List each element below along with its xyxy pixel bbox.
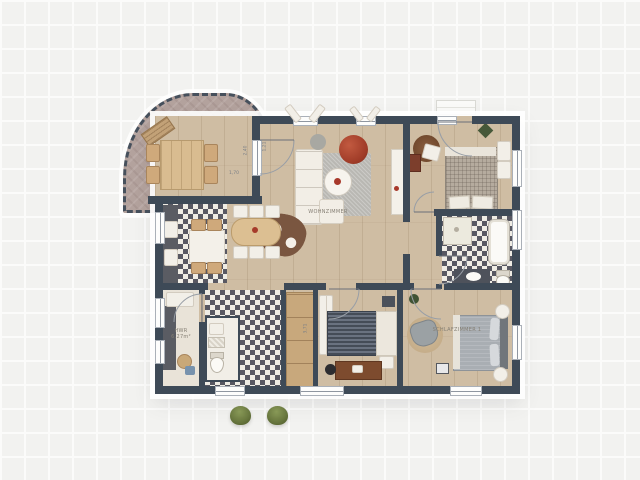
vanity-sink [466,272,481,281]
wall [199,290,205,294]
shower-drain [454,227,459,232]
front-door-slab [437,116,457,125]
wall [436,216,442,256]
closet-wardrobe [286,292,315,388]
wall [512,185,520,210]
floor-plan-canvas: WOHNZIMMER SCHLAFZIMMER 1 HWR 6,27m² 1,7… [0,0,640,480]
bed1-headboard [500,315,508,369]
bedroom1-label: SCHLAFZIMMER 1 [427,327,487,333]
nightstand-round [493,367,508,382]
kitchen-chair [191,219,206,231]
dimension-label: 1,70 [224,171,244,176]
ottoman [310,134,326,150]
kitchen-stove [164,249,178,266]
wall [397,290,403,386]
bed2-striped [327,311,378,356]
utility-area-label: 6,27m² [163,334,199,340]
wall [444,283,512,290]
wall [155,242,163,298]
terrace-table [160,140,204,190]
bed1-pillow [489,344,499,366]
plant [409,294,419,304]
bed3-pillow [449,195,471,209]
bathtub [488,219,510,265]
washing-machine [166,292,194,307]
wall [356,283,403,290]
bed2-pillows [376,311,397,356]
dining-chair [249,246,264,259]
terrace-door-opening [252,140,262,176]
living-room-label: WOHNZIMMER [298,209,358,215]
sideboard-decor [394,186,399,191]
wall [434,209,512,216]
wc-sink [209,323,224,335]
entrance-step [436,100,476,115]
wall [163,283,208,290]
window [155,298,165,328]
wall [313,290,318,386]
desk-paper [352,365,363,373]
wall [284,283,326,290]
window [512,210,522,250]
wall [512,248,520,325]
kitchen-island [189,230,225,263]
bush [230,406,251,425]
laptop [436,363,449,374]
dining-chair [249,205,264,218]
dining-chair [265,205,280,218]
kitchen-sink [164,221,178,238]
terrace-chair [204,166,218,184]
kitchen-counter [163,205,178,283]
bed1-fold [453,315,460,369]
wall [342,386,450,394]
table-decor-red [334,178,341,185]
shelf [497,141,511,161]
dining-chair [265,246,280,259]
nightstand-round [495,304,510,319]
wall [155,386,215,394]
window [155,212,165,244]
wall [281,290,286,386]
dimension-label: 3,71 [304,319,309,339]
wall [148,196,262,204]
wall [243,386,300,394]
wall [252,116,260,140]
wall [155,326,163,340]
wall [199,322,205,386]
kitchen-chair [207,219,222,231]
wall [480,386,520,394]
dining-chair [233,246,248,259]
bed3-pillow [472,195,494,209]
stool-black [325,364,336,375]
bucket-blue [185,366,195,375]
dresser-dark [382,296,395,307]
window [512,325,522,360]
dining-decor-red [252,227,258,233]
dimension-label: 1,21 [263,137,268,157]
window [450,386,482,396]
terrace-chair [146,144,160,162]
wall [436,284,442,289]
wall [155,362,163,394]
wall [512,116,520,150]
wall [403,124,410,222]
wall [374,116,437,124]
wc-shelf [208,337,225,348]
window [512,150,522,187]
kitchen-chair [191,262,206,274]
wall [403,283,414,290]
armchair-red [339,135,368,164]
bush [267,406,288,425]
bed1-pillow [489,318,500,341]
terrace-chair [204,144,218,162]
wall [316,116,356,124]
dimension-label: 2,40 [244,141,249,161]
terrace-chair [146,166,160,184]
window [215,386,245,396]
shelf [497,161,511,179]
bed3-duvet-fold [445,147,496,156]
window [300,386,344,396]
kitchen-chair [207,262,222,274]
dining-chair [233,205,248,218]
window [155,340,165,364]
